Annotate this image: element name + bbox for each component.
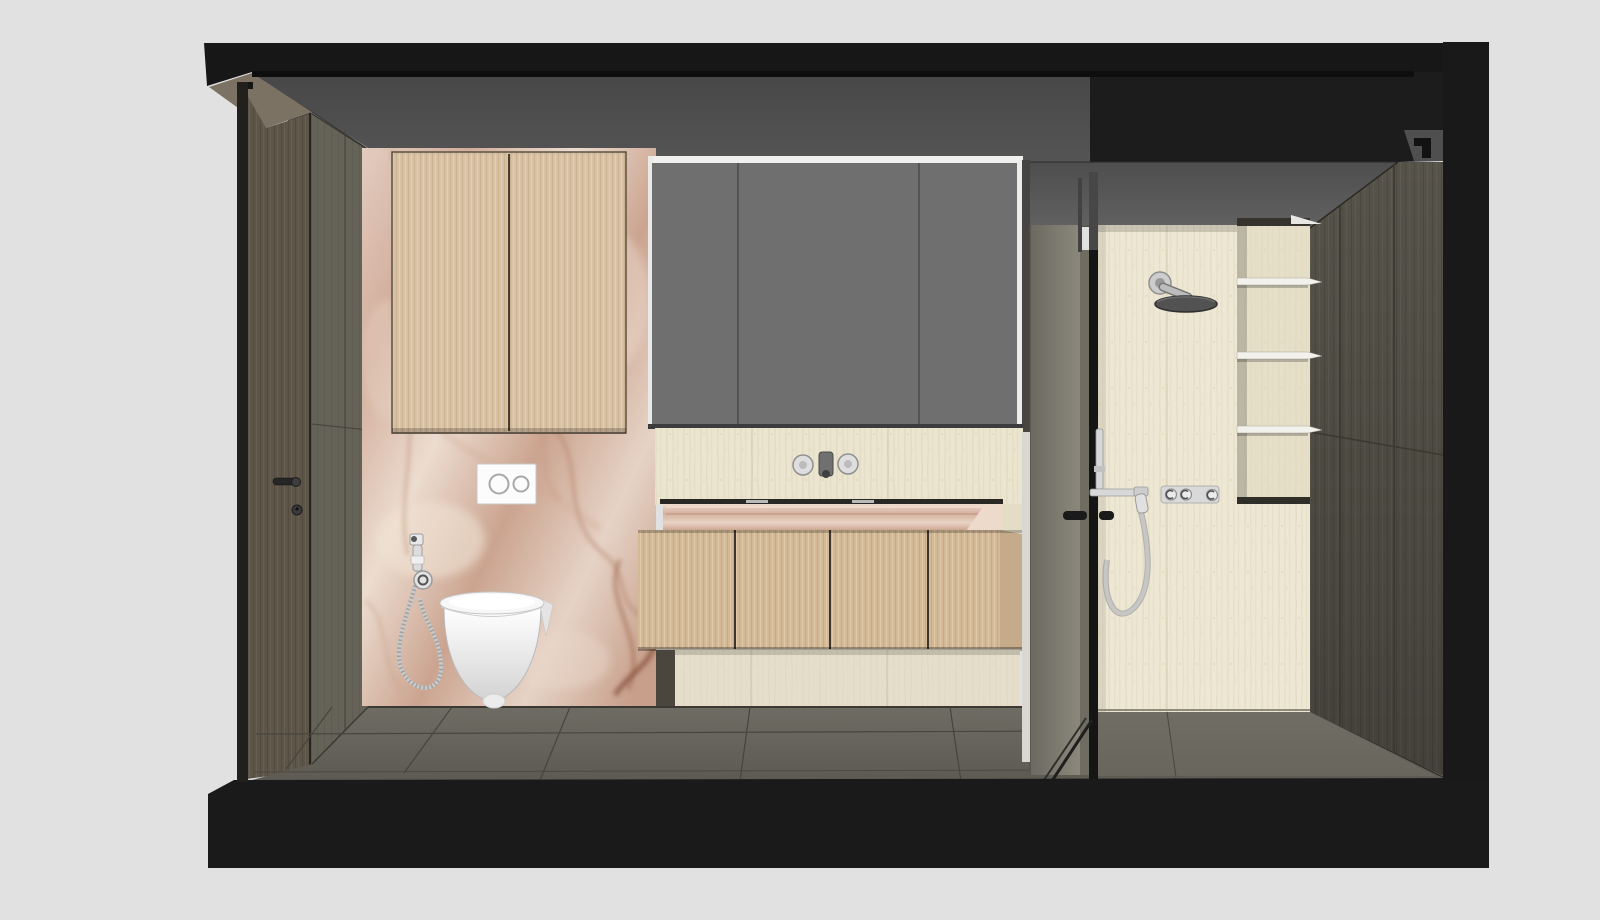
faucet-handle-right-hub <box>844 460 852 468</box>
vanity-drawers <box>638 530 1022 651</box>
flush-plate-body <box>477 464 536 504</box>
shower-slide-rail <box>1096 429 1103 489</box>
toilet-lid-top <box>449 594 535 610</box>
glass-frame-upper <box>1089 172 1098 250</box>
faucet-handle-left-hub <box>799 461 807 469</box>
glass-handle <box>1099 511 1114 520</box>
niche-bottom-slot <box>1237 497 1310 504</box>
mirror-face <box>652 163 1017 425</box>
door-leaf <box>247 95 312 779</box>
door-keyhole <box>296 508 299 511</box>
door-handle-rosette <box>292 478 301 487</box>
left-wall-cut <box>237 82 248 782</box>
wardrobe-paneling <box>1310 162 1443 776</box>
soffit-face <box>1090 72 1443 172</box>
pillar-face <box>1030 225 1080 775</box>
rail-bracket <box>1094 466 1105 472</box>
cabinet-bottom-shadow <box>392 428 626 434</box>
glass-frame <box>1089 250 1098 782</box>
wall-faucet <box>793 452 858 478</box>
shower-niche <box>1237 215 1322 504</box>
plinth-texture <box>675 650 1020 706</box>
render-viewport <box>0 0 1600 920</box>
toilet-outlet <box>483 694 505 708</box>
glass-top-edge <box>1078 178 1082 252</box>
ceiling-slab-lip <box>252 71 1414 77</box>
wall-pillar <box>1022 225 1090 775</box>
mirror-side-panel <box>1022 160 1030 432</box>
floor-slab-cut <box>208 778 1488 868</box>
pillar-trim <box>1022 432 1030 762</box>
drawer-end-panel <box>1000 530 1022 649</box>
sprayer-nozzle-tip <box>411 536 417 542</box>
backsplash-patch <box>1002 504 1023 532</box>
plinth-shadow-gap <box>656 650 675 706</box>
faucet-spout-tip <box>822 470 830 478</box>
drawer-bank <box>638 530 1000 649</box>
bathroom-render <box>0 0 1600 920</box>
mirror-cabinet <box>648 156 1030 432</box>
onyx-countertop <box>663 504 1002 534</box>
bathroom-floor <box>252 706 1443 781</box>
side-wall-face <box>312 114 368 764</box>
wardrobe-shade <box>1310 162 1443 776</box>
niche-left-shadow <box>1237 225 1247 504</box>
glass-handle <box>1063 511 1087 520</box>
plinth-top-shadow <box>675 650 1020 655</box>
drawer-top-shadow <box>638 530 1022 533</box>
mirror-trim-top <box>648 156 1023 163</box>
sink-slot <box>660 499 1003 504</box>
sink-slot-chrome <box>852 500 874 503</box>
sprayer-trigger <box>411 556 424 564</box>
counter-slab <box>663 504 1002 531</box>
vanity-plinth <box>656 650 1020 706</box>
shower-controls <box>1161 486 1219 503</box>
wall-cabinet <box>392 152 626 434</box>
side-wall-paneling <box>312 114 368 764</box>
sprayer-holder <box>414 571 432 589</box>
flush-plate <box>477 464 536 504</box>
sink-slot-chrome <box>746 500 768 503</box>
niche-texture <box>1237 225 1310 504</box>
right-wall-cut <box>1443 42 1489 868</box>
